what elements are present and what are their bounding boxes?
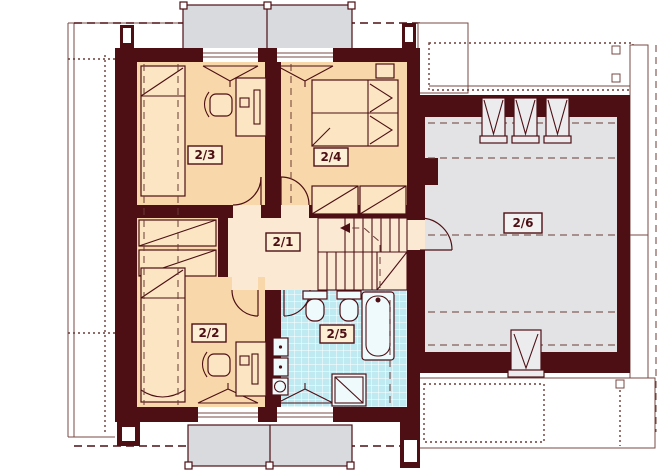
roof-window-icon [544,98,571,143]
floor-plan-page: 2/1 2/2 2/3 2/4 2/5 2/6 [0,0,662,474]
terrace-right [630,45,656,432]
double-bed-icon [312,80,398,146]
bathtub-icon [362,292,394,360]
room-label-2-6: 2/6 [512,216,533,230]
roof-window-icon [480,98,507,143]
downpipe-icon [612,74,620,82]
downpipe-icon [616,380,624,388]
bidet-icon [337,291,361,321]
dormer-bottom [185,425,354,469]
building-b [407,95,630,377]
downpipe-icon [612,46,620,54]
room-label-2-2: 2/2 [198,326,219,340]
roof-window-icon [508,330,544,377]
shower-icon [332,374,366,406]
eaves-band-top-right [418,23,633,93]
desk-icon [236,78,266,136]
dormer-top [180,2,355,50]
nightstand-icon [376,64,394,78]
room-label-2-5: 2/5 [326,327,347,341]
room-label-2-1: 2/1 [272,235,293,249]
room-label-2-3: 2/3 [194,148,215,162]
terrace-bottom [418,378,655,448]
toilet-icon [303,291,327,321]
washer-icon [272,378,288,395]
wall-pilaster [425,158,438,185]
floor-plan-canvas: 2/1 2/2 2/3 2/4 2/5 2/6 [0,0,662,474]
roof-window-icon [512,98,539,143]
desk-icon [236,342,266,396]
room-label-2-4: 2/4 [320,150,341,164]
